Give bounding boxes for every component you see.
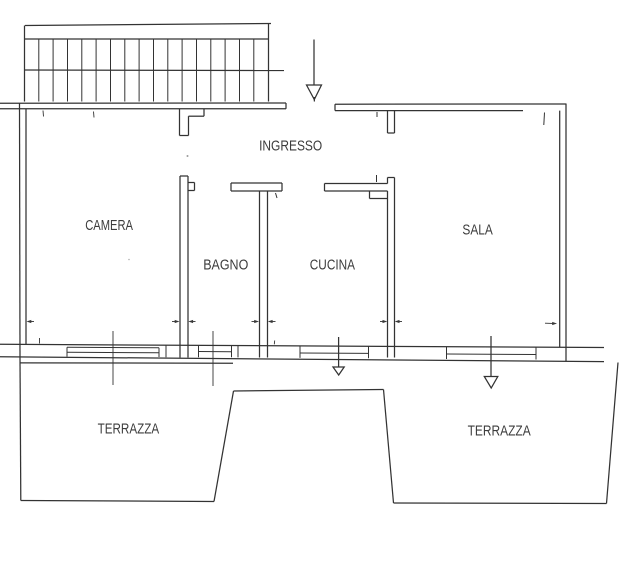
svg-text:SALA: SALA	[462, 221, 492, 238]
svg-text:BAGNO: BAGNO	[203, 257, 248, 274]
svg-text:TERRAZZA: TERRAZZA	[98, 420, 160, 437]
svg-text:TERRAZZA: TERRAZZA	[468, 423, 531, 440]
svg-text:CUCINA: CUCINA	[310, 256, 355, 273]
svg-text:INGRESSO: INGRESSO	[259, 138, 322, 155]
svg-text:CAMERA: CAMERA	[85, 217, 133, 234]
